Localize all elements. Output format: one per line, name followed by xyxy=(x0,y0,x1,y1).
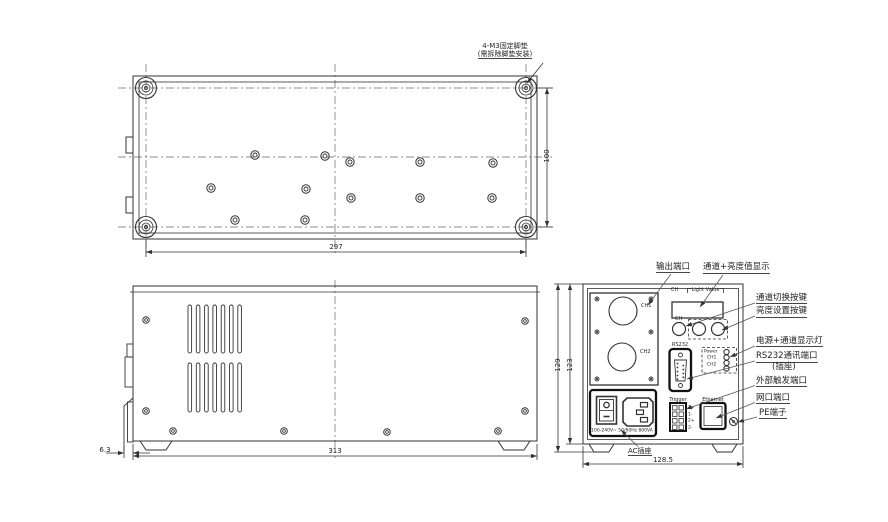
dim-bottom-depth: 100 xyxy=(543,141,551,171)
callout-output-port: 输出端口 xyxy=(656,263,690,274)
display-light-value-header: Light Value xyxy=(687,287,724,293)
display-window xyxy=(672,289,724,319)
callout-display: 通道+亮度值显示 xyxy=(703,263,770,274)
channel-knobs xyxy=(673,320,728,340)
foot xyxy=(498,441,530,450)
knob-ch-label: CH xyxy=(675,316,682,322)
knob-brightness-1 xyxy=(693,323,706,336)
ch1-port-label: CH1 xyxy=(641,303,651,309)
knob-ch xyxy=(673,323,686,336)
callout-power-leds: 电源+通道显示灯 xyxy=(756,337,823,348)
dim-bottom-width: 297 xyxy=(316,243,356,251)
dim-rear-width: 128.5 xyxy=(643,456,683,464)
led-ch1-label: CH1 xyxy=(707,355,716,360)
trigger-terminal-2p: 2+ xyxy=(688,418,695,423)
trigger-terminal-2n: 2- xyxy=(688,425,692,430)
rear-view xyxy=(583,284,743,452)
power-switch xyxy=(597,397,617,425)
foot-note-leader xyxy=(527,63,543,83)
ac-socket-note: AC插座 xyxy=(628,447,652,456)
foot xyxy=(140,441,172,450)
bottom-view xyxy=(118,64,552,254)
foot-pad-note-line2: (需拆除脚垫安装) xyxy=(478,50,532,59)
engineering-drawing: 4-M3固定脚垫 (需拆除脚垫安装) 297 100 313 6.3 129 1… xyxy=(0,0,888,522)
chassis-outline xyxy=(583,284,743,444)
db9-connector xyxy=(670,349,692,391)
drawing-linework xyxy=(0,0,888,522)
ch2-port-label: CH2 xyxy=(640,349,650,355)
display-ch-header: CH xyxy=(671,287,678,293)
rs232-label: RS232 xyxy=(669,342,691,348)
knob-brightness-2 xyxy=(712,323,725,336)
side-tab xyxy=(126,197,133,213)
center-lines xyxy=(118,64,552,254)
callout-trigger: 外部触发端口 xyxy=(756,377,807,388)
ethernet-label: Ethernet xyxy=(698,397,728,403)
screw-holes xyxy=(143,317,529,436)
vent-slots xyxy=(188,305,241,412)
foot-pads xyxy=(136,78,537,238)
trigger-terminal xyxy=(670,403,686,431)
left-bracket xyxy=(124,344,133,452)
led-power-label: Power xyxy=(704,349,718,354)
trigger-label: Trigger xyxy=(668,397,688,403)
dim-rear-height-inner: 123 xyxy=(566,350,574,380)
ac-rating-text: 100-240V~ 50/60Hz 800VA xyxy=(589,428,655,433)
side-view xyxy=(124,280,540,458)
callout-channel-switch: 通道切换按键 xyxy=(756,294,807,305)
dim-side-length: 313 xyxy=(315,447,355,455)
trigger-terminal-1p: 1+ xyxy=(688,405,695,410)
dim-side-offset: 6.3 xyxy=(94,446,116,454)
trigger-terminal-1n: 1- xyxy=(688,412,692,417)
foot-pad-note-line1: 4-M3固定脚垫 xyxy=(455,42,555,50)
led-ch2-label: CH2 xyxy=(707,362,716,367)
rear-view-dimensions xyxy=(554,284,743,468)
callout-ethernet: 网口端口 xyxy=(756,394,790,405)
output-port-ch1 xyxy=(609,297,637,325)
foot xyxy=(589,444,614,452)
output-port-ch2 xyxy=(608,343,636,371)
iec-inlet xyxy=(623,398,653,426)
foot-pad-note: 4-M3固定脚垫 (需拆除脚垫安装) xyxy=(455,42,555,59)
foot xyxy=(712,444,737,452)
dim-rear-height-outer: 129 xyxy=(554,350,562,380)
callout-pe: PE端子 xyxy=(759,409,787,420)
screw-holes xyxy=(207,151,497,224)
pe-screw xyxy=(730,418,738,426)
callout-rs232-line2: (插座) xyxy=(772,363,796,373)
callout-brightness-set: 亮度设置按键 xyxy=(756,307,807,318)
side-tab xyxy=(126,137,133,153)
